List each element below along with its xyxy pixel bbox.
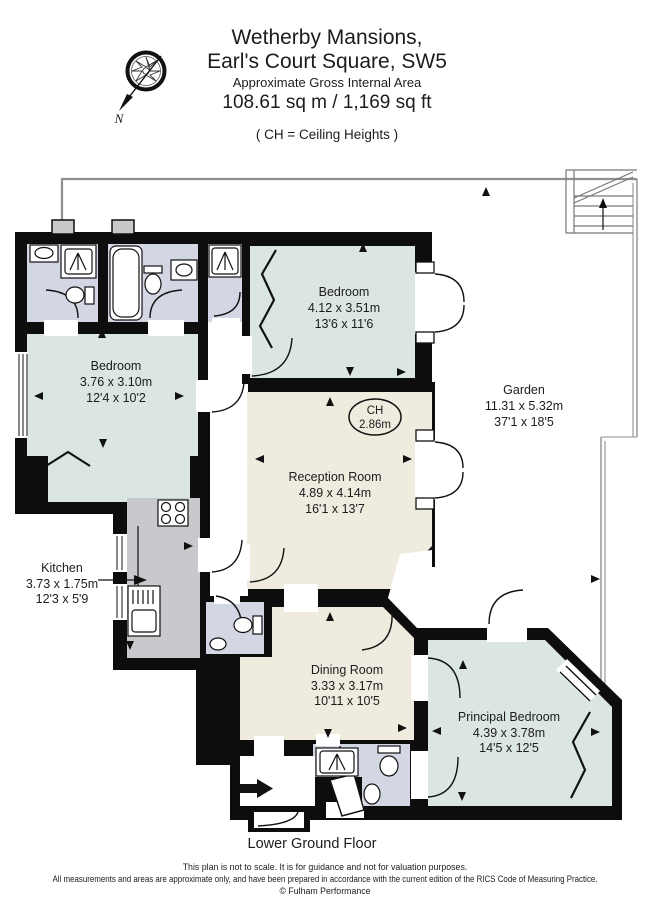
shower-icon (209, 245, 241, 277)
bathtub-icon (110, 246, 142, 320)
svg-text:12'3 x 5'9: 12'3 x 5'9 (36, 592, 89, 606)
ceiling-height-badge: CH 2.86m (349, 399, 401, 435)
compass-icon: N (114, 53, 165, 127)
svg-text:Reception Room: Reception Room (288, 470, 381, 484)
svg-text:CH: CH (367, 405, 384, 417)
compass-north-label: N (114, 111, 125, 126)
bedroom-left-bay (48, 456, 190, 502)
toilet-icon (378, 746, 400, 776)
kitchen-sink-icon (128, 586, 160, 636)
svg-text:3.33 x 3.17m: 3.33 x 3.17m (311, 679, 383, 693)
stove-icon (158, 500, 188, 526)
svg-text:37'1 x 18'5: 37'1 x 18'5 (494, 415, 554, 429)
svg-text:12'4 x 10'2: 12'4 x 10'2 (86, 391, 146, 405)
svg-text:11.31 x 5.32m: 11.31 x 5.32m (485, 399, 563, 413)
svg-text:13'6 x 11'6: 13'6 x 11'6 (315, 317, 374, 331)
svg-text:Principal Bedroom: Principal Bedroom (458, 710, 560, 724)
svg-text:Bedroom: Bedroom (91, 359, 142, 373)
sink-icon (364, 784, 380, 804)
sink-icon (171, 260, 197, 280)
page-title-line1: Wetherby Mansions, (231, 26, 422, 49)
shower-icon (61, 245, 96, 278)
toilet-icon (144, 266, 162, 294)
svg-text:4.39 x 3.78m: 4.39 x 3.78m (473, 726, 545, 740)
svg-text:10'11 x 10'5: 10'11 x 10'5 (314, 694, 380, 708)
toilet-icon (66, 287, 94, 304)
toilet-icon (234, 616, 262, 634)
svg-text:3.76 x 3.10m: 3.76 x 3.10m (80, 375, 152, 389)
sink-icon (30, 245, 58, 262)
svg-text:2.86m: 2.86m (359, 419, 391, 431)
svg-text:4.12 x 3.51m: 4.12 x 3.51m (308, 301, 380, 315)
svg-text:4.89 x 4.14m: 4.89 x 4.14m (299, 486, 371, 500)
copyright: © Fulham Performance (279, 886, 370, 896)
label-bedroom-top: Bedroom 4.12 x 3.51m 13'6 x 11'6 (308, 285, 380, 331)
label-garden: Garden 11.31 x 5.32m 37'1 x 18'5 (485, 383, 563, 429)
page-title-line2: Earl's Court Square, SW5 (207, 50, 447, 73)
label-bedroom-left: Bedroom 3.76 x 3.10m 12'4 x 10'2 (80, 359, 152, 405)
label-dining: Dining Room 3.33 x 3.17m 10'11 x 10'5 (311, 663, 383, 708)
stairs-up-arrow (599, 198, 607, 208)
floorplan-canvas: Wetherby Mansions, Earl's Court Square, … (0, 0, 650, 919)
label-kitchen: Kitchen 3.73 x 1.75m 12'3 x 5'9 (26, 561, 98, 606)
floorplan-page: Wetherby Mansions, Earl's Court Square, … (0, 0, 650, 919)
entry-hall (240, 756, 315, 806)
footer: Lower Ground Floor This plan is not to s… (53, 836, 598, 896)
lightwell-protrusions (52, 220, 134, 234)
floor-label: Lower Ground Floor (248, 836, 377, 852)
svg-text:Kitchen: Kitchen (41, 561, 83, 575)
header: Wetherby Mansions, Earl's Court Square, … (207, 26, 447, 142)
svg-text:14'5 x 12'5: 14'5 x 12'5 (479, 741, 539, 755)
disclaimer-line2: All measurements and areas are approxima… (53, 874, 598, 884)
sink-icon (210, 638, 226, 650)
disclaimer-line1: This plan is not to scale. It is for gui… (183, 862, 468, 872)
svg-text:Bedroom: Bedroom (319, 285, 370, 299)
svg-text:3.73 x 1.75m: 3.73 x 1.75m (26, 577, 98, 591)
subtitle: Approximate Gross Internal Area (233, 75, 422, 90)
area-text: 108.61 sq m / 1,169 sq ft (222, 92, 432, 113)
svg-text:Dining Room: Dining Room (311, 663, 383, 677)
svg-text:Garden: Garden (503, 383, 545, 397)
shower-icon (316, 748, 358, 776)
ch-note: ( CH = Ceiling Heights ) (256, 127, 398, 142)
svg-text:16'1 x 13'7: 16'1 x 13'7 (305, 502, 365, 516)
